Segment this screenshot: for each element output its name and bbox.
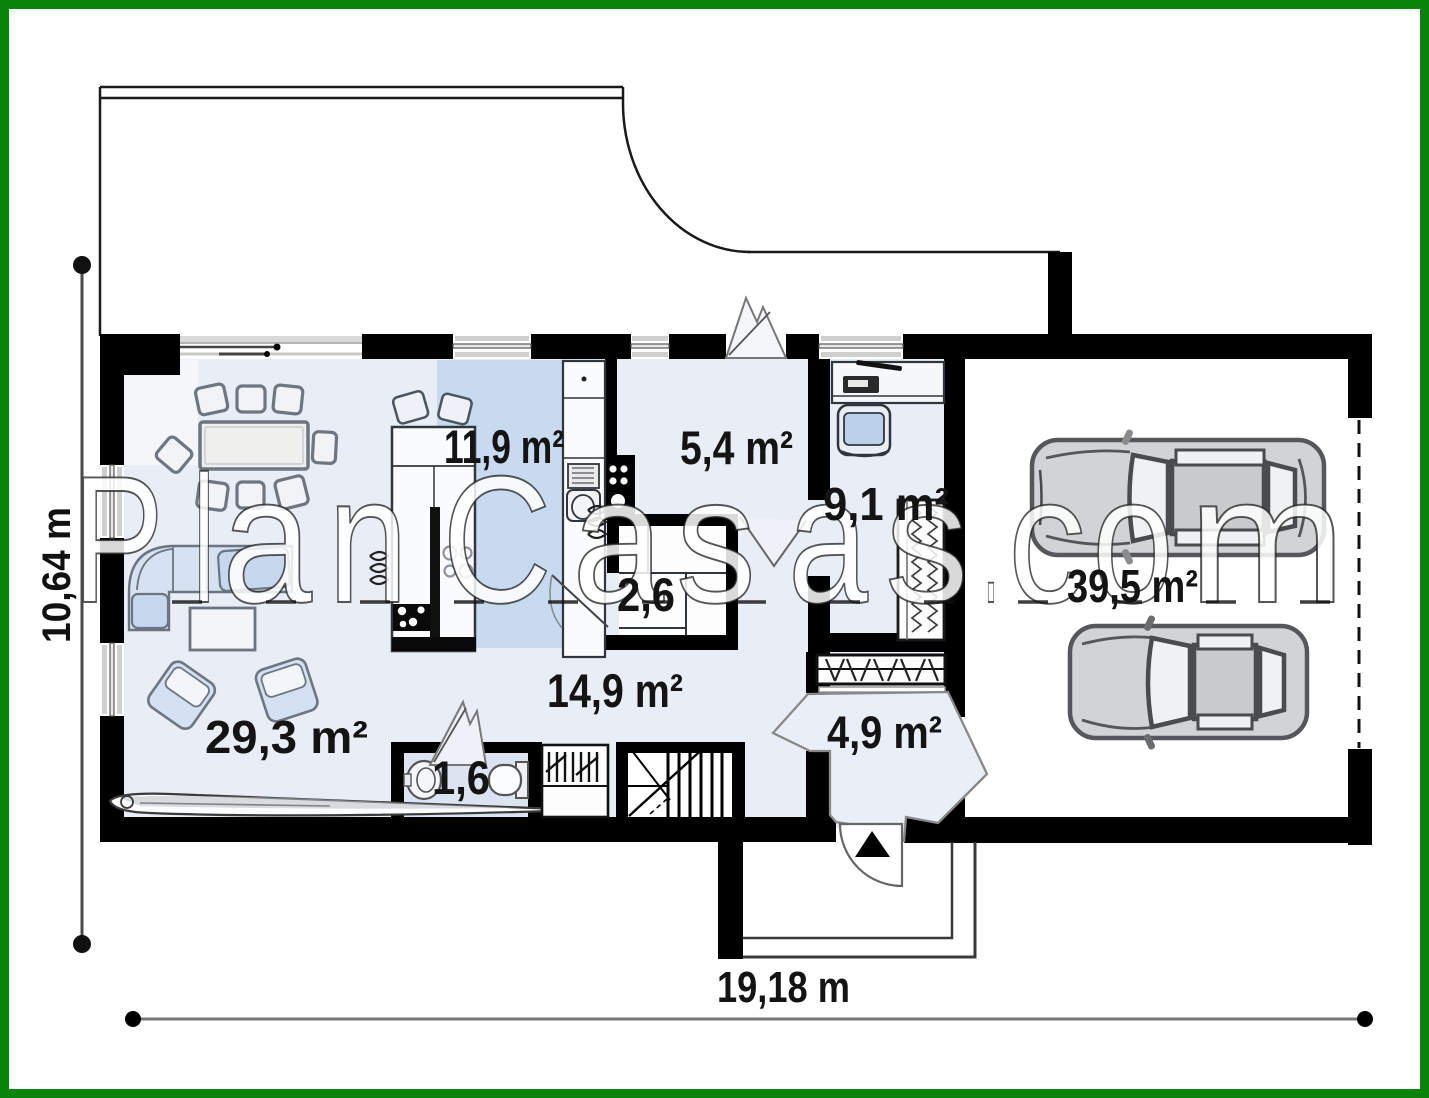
svg-text:19,18 m: 19,18 m xyxy=(717,963,850,1012)
svg-text:a: a xyxy=(222,439,312,641)
svg-text:s: s xyxy=(885,439,969,641)
svg-text:10,64 m: 10,64 m xyxy=(35,507,79,643)
svg-text:4,9 m²: 4,9 m² xyxy=(827,707,942,758)
svg-text:n: n xyxy=(328,439,408,641)
svg-text:l: l xyxy=(193,439,215,641)
svg-text:14,9 m²: 14,9 m² xyxy=(547,664,683,717)
svg-text:29,3 m²: 29,3 m² xyxy=(205,711,368,763)
svg-text:11,9 m²: 11,9 m² xyxy=(444,420,564,473)
svg-text:2,6: 2,6 xyxy=(617,568,675,621)
svg-text:a: a xyxy=(788,439,868,641)
svg-text:5,4 m²: 5,4 m² xyxy=(680,421,793,474)
svg-text:P: P xyxy=(72,439,164,641)
svg-text:9,1 m²: 9,1 m² xyxy=(823,478,949,530)
svg-text:.: . xyxy=(983,439,999,641)
svg-text:39,5 m²: 39,5 m² xyxy=(1067,560,1198,612)
svg-text:1,6: 1,6 xyxy=(432,751,490,804)
svg-text:m: m xyxy=(1188,439,1346,641)
